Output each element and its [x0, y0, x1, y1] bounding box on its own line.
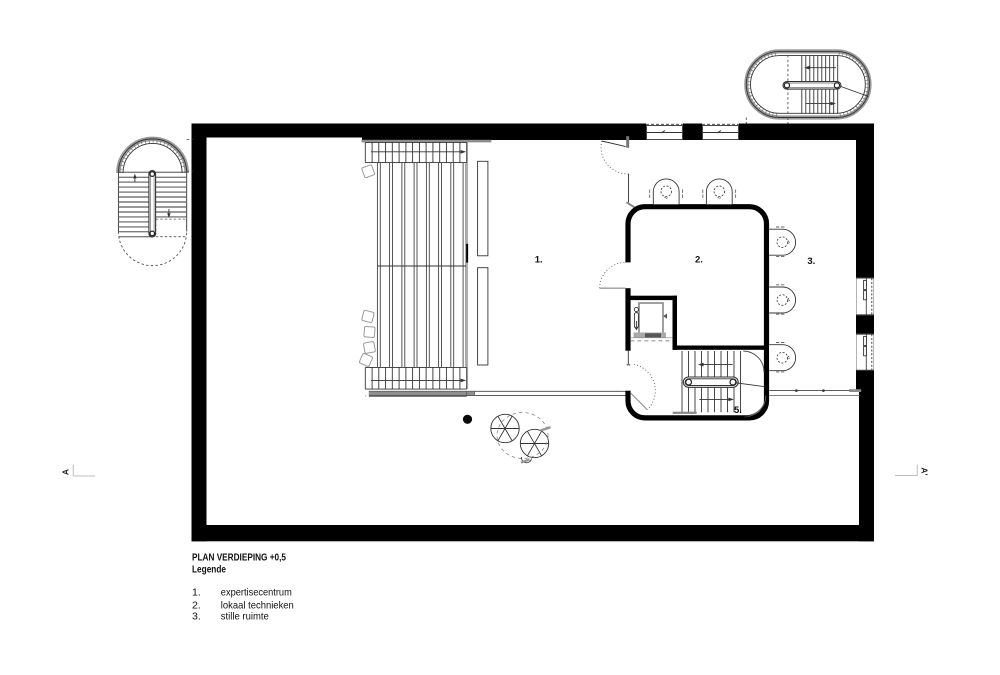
svg-text:Legende: Legende [192, 565, 226, 576]
svg-text:1.: 1. [535, 255, 543, 266]
svg-text:expertisecentrum: expertisecentrum [221, 587, 292, 599]
svg-text:3.: 3. [192, 610, 201, 622]
svg-text:A: A [61, 469, 71, 475]
svg-text:PLAN VERDIEPING +0,5: PLAN VERDIEPING +0,5 [192, 553, 286, 564]
svg-text:2.: 2. [695, 254, 703, 265]
svg-text:5.: 5. [734, 405, 742, 416]
svg-text:1.: 1. [192, 587, 201, 599]
svg-text:3.: 3. [807, 256, 815, 267]
svg-text:stille ruimte: stille ruimte [221, 610, 269, 622]
svg-text:A': A' [920, 467, 930, 475]
